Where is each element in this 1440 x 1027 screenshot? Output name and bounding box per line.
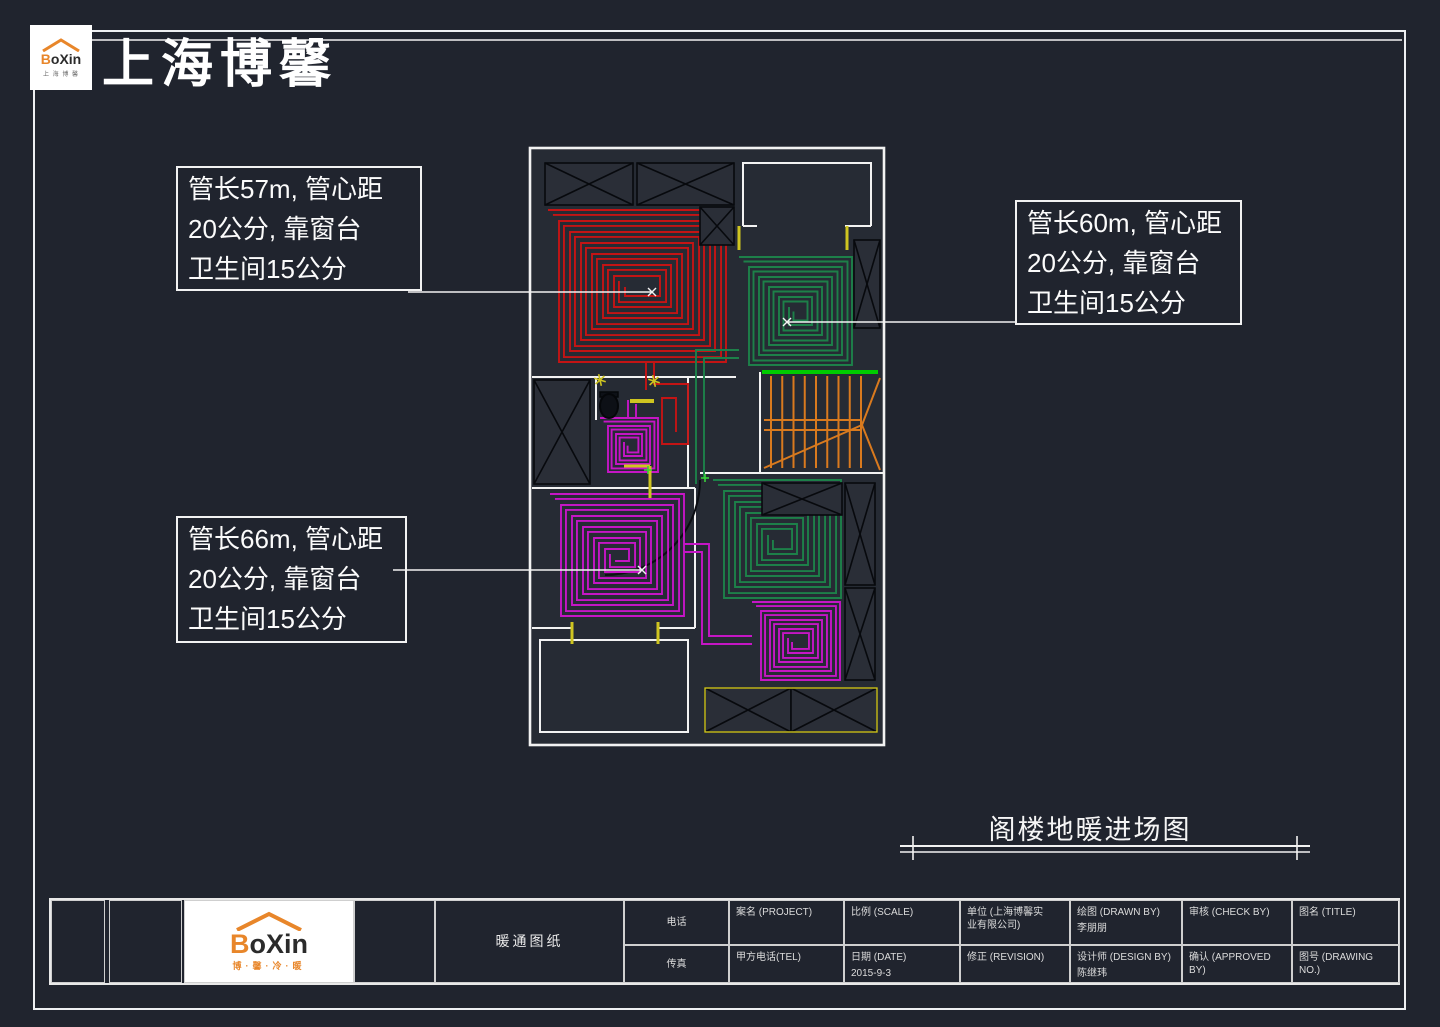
title-block-empty-cell xyxy=(109,900,182,983)
field-title: 图名 (TITLE) xyxy=(1292,900,1400,945)
field-project: 案名 (PROJECT) xyxy=(729,900,844,945)
boxin-logo: BoXin 上 海 博 馨 xyxy=(30,25,92,90)
drawn-by-value: 李朋朋 xyxy=(1077,922,1175,935)
pipe-annotation-60m: 管长60m, 管心距 20公分, 靠窗台 卫生间15公分 xyxy=(1015,200,1242,325)
logo-wordmark: BoXin xyxy=(41,52,81,66)
designer-value: 陈继玮 xyxy=(1077,967,1175,980)
cad-sheet: { "header": { "brand_title": "上海博馨", "lo… xyxy=(0,0,1440,1027)
brand-title: 上海博馨 xyxy=(102,22,338,97)
field-fax: 传真 xyxy=(624,945,729,983)
field-check-by: 审核 (CHECK BY) xyxy=(1182,900,1292,945)
house-roof-icon xyxy=(232,911,306,931)
designer-label: 设计师 (DESIGN BY) xyxy=(1077,952,1171,963)
logo-subtext: 上 海 博 馨 xyxy=(43,69,79,78)
field-approved-by: 确认 (APPROVED BY) xyxy=(1182,945,1292,983)
field-revision: 修正 (REVISION) xyxy=(960,945,1070,983)
pipe-annotation-66m: 管长66m, 管心距 20公分, 靠窗台 卫生间15公分 xyxy=(176,516,407,643)
title-block: BoXin 博·馨·冷·暖 暖通图纸 电话 案名 (PROJECT) 比例 (S… xyxy=(49,898,1400,985)
pipe-annotation-57m: 管长57m, 管心距 20公分, 靠窗台 卫生间15公分 xyxy=(176,166,422,291)
field-date: 日期 (DATE)2015-9-3 xyxy=(844,945,960,983)
title-block-empty-cell xyxy=(51,900,105,983)
field-phone: 电话 xyxy=(624,900,729,945)
date-value: 2015-9-3 xyxy=(851,967,953,980)
house-roof-icon xyxy=(40,38,82,52)
drawn-by-label: 绘图 (DRAWN BY) xyxy=(1077,907,1160,918)
field-drawing-no: 图号 (DRAWING NO.) xyxy=(1292,945,1400,983)
sheet-category: 暖通图纸 xyxy=(435,900,624,983)
field-client-tel: 甲方电话(TEL) xyxy=(729,945,844,983)
logo-wordmark: BoXin xyxy=(230,931,308,958)
title-block-empty-cell xyxy=(354,900,435,983)
field-drawn-by: 绘图 (DRAWN BY)李朋朋 xyxy=(1070,900,1182,945)
field-company: 单位 (上海博馨实 业有限公司) xyxy=(960,900,1070,945)
logo-subtext: 博·馨·冷·暖 xyxy=(233,960,306,973)
field-scale: 比例 (SCALE) xyxy=(844,900,960,945)
floor-plan-drawing xyxy=(0,0,1440,1027)
field-designer: 设计师 (DESIGN BY)陈继玮 xyxy=(1070,945,1182,983)
date-label: 日期 (DATE) xyxy=(851,952,906,963)
boxin-logo-titleblock: BoXin 博·馨·冷·暖 xyxy=(184,900,354,983)
